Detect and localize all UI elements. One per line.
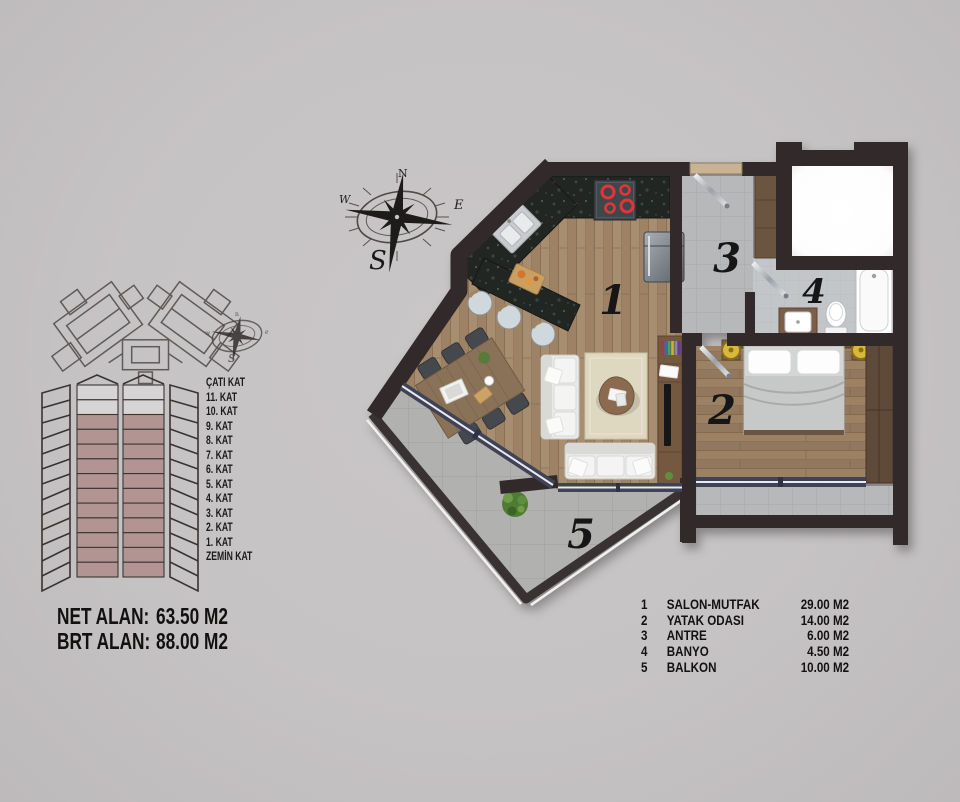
legend-area: 29.00 M2: [782, 597, 849, 613]
stack-right-wing: [170, 385, 198, 591]
legend-row-yatak: 2 YATAK ODASI 14.00 M2: [641, 613, 851, 629]
bedroom-balcony-strip-floor: [695, 486, 893, 516]
floor-label: 11. KAT: [206, 391, 289, 406]
floor-label: 2. KAT: [206, 521, 289, 536]
legend-name: BALKON: [667, 660, 782, 676]
compass-star: [338, 166, 459, 280]
stove-cooktop: [594, 180, 636, 220]
legend-area: 10.00 M2: [782, 660, 849, 676]
room-number-banyo: 4: [802, 272, 826, 312]
floor-label: 9. KAT: [206, 420, 289, 435]
plan-sheet-canvas: n w e S N W E S: [0, 0, 960, 802]
compass-rose: N W E S: [338, 166, 464, 280]
brt-area-value: 88.00 M2: [156, 629, 269, 654]
floor-label: 10. KAT: [206, 405, 289, 420]
legend-area: 14.00 M2: [782, 613, 849, 629]
legend-name: SALON-MUTFAK: [667, 597, 782, 613]
bathtub: [856, 264, 892, 336]
legend-row-banyo: 4 BANYO 4.50 M2: [641, 644, 851, 660]
stack-roof-caps: [77, 375, 164, 384]
legend-num: 4: [641, 644, 655, 660]
net-area-value: 63.50 M2: [156, 604, 269, 629]
room-number-antre: 3: [713, 235, 741, 282]
site-plan-left-wing: [29, 261, 156, 379]
legend-num: 5: [641, 660, 655, 676]
compass-small-s: S: [228, 352, 236, 365]
window-bedroom-south: [696, 477, 866, 487]
tv-unit: [658, 336, 682, 484]
window-living-south: [558, 483, 682, 492]
site-plan-drawing: [29, 261, 262, 383]
shaft-room: [792, 166, 893, 256]
brt-area-row: BRT ALAN: 88.00 M2: [57, 629, 297, 654]
net-area-row: NET ALAN: 63.50 M2: [57, 604, 297, 629]
legend-name: BANYO: [667, 644, 782, 660]
floor-label: 3. KAT: [206, 507, 289, 522]
sofa-vertical: [541, 355, 579, 439]
floor-label: 1. KAT: [206, 536, 289, 551]
bedroom-wardrobe: [866, 338, 893, 483]
building-stack-diagram: [42, 375, 198, 591]
legend-area: 6.00 M2: [782, 628, 849, 644]
floor-label: ÇATI KAT: [206, 376, 289, 391]
legend-area: 4.50 M2: [782, 644, 849, 660]
bathroom-vanity: [779, 308, 817, 336]
antre-wardrobe: [755, 172, 777, 258]
stack-floor-rows: [77, 385, 164, 577]
site-plan-center-block: [109, 340, 183, 384]
compass-small-n: n: [235, 311, 239, 318]
floor-label: 6. KAT: [206, 463, 289, 478]
compass-label-n: N: [398, 167, 408, 180]
legend-num: 1: [641, 597, 655, 613]
floor-label: 8. KAT: [206, 434, 289, 449]
balcony-plant: [502, 491, 528, 517]
legend-row-salon: 1 SALON-MUTFAK 29.00 M2: [641, 597, 851, 613]
floorplan-page: { "title": "Apartment floor plan sheet",…: [0, 0, 960, 802]
room-legend: 1 SALON-MUTFAK 29.00 M2 2 YATAK ODASI 14…: [641, 597, 851, 675]
legend-row-antre: 3 ANTRE 6.00 M2: [641, 628, 851, 644]
stack-left-wing: [42, 385, 70, 591]
legend-num: 3: [641, 628, 655, 644]
compass-label-e: E: [453, 198, 464, 213]
floor-label: 4. KAT: [206, 492, 289, 507]
sofa-horizontal: [565, 443, 655, 479]
apartment-plan: 1 2 3 4 5: [367, 142, 908, 605]
legend-name: ANTRE: [667, 628, 782, 644]
bed: [737, 337, 851, 435]
legend-name: YATAK ODASI: [667, 613, 782, 629]
legend-num: 2: [641, 613, 655, 629]
area-summary: NET ALAN: 63.50 M2 BRT ALAN: 88.00 M2: [57, 604, 297, 654]
room-number-salon: 1: [599, 277, 627, 324]
compass-small-w: w: [205, 330, 211, 337]
room-number-yatak: 2: [707, 387, 736, 434]
net-area-label: NET ALAN:: [57, 604, 156, 629]
toilet: [825, 301, 847, 335]
compass-label-s: S: [369, 246, 387, 276]
floor-label: 7. KAT: [206, 449, 289, 464]
room-number-balkon: 5: [567, 511, 595, 558]
stack-floor-labels: ÇATI KAT 11. KAT 10. KAT 9. KAT 8. KAT 7…: [206, 376, 316, 565]
floor-label: 5. KAT: [206, 478, 289, 493]
floor-label: ZEMİN KAT: [206, 550, 289, 565]
brt-area-label: BRT ALAN:: [57, 629, 156, 654]
compass-small-e: e: [265, 329, 269, 336]
legend-row-balkon: 5 BALKON 10.00 M2: [641, 660, 851, 676]
compass-label-w: W: [339, 193, 352, 206]
